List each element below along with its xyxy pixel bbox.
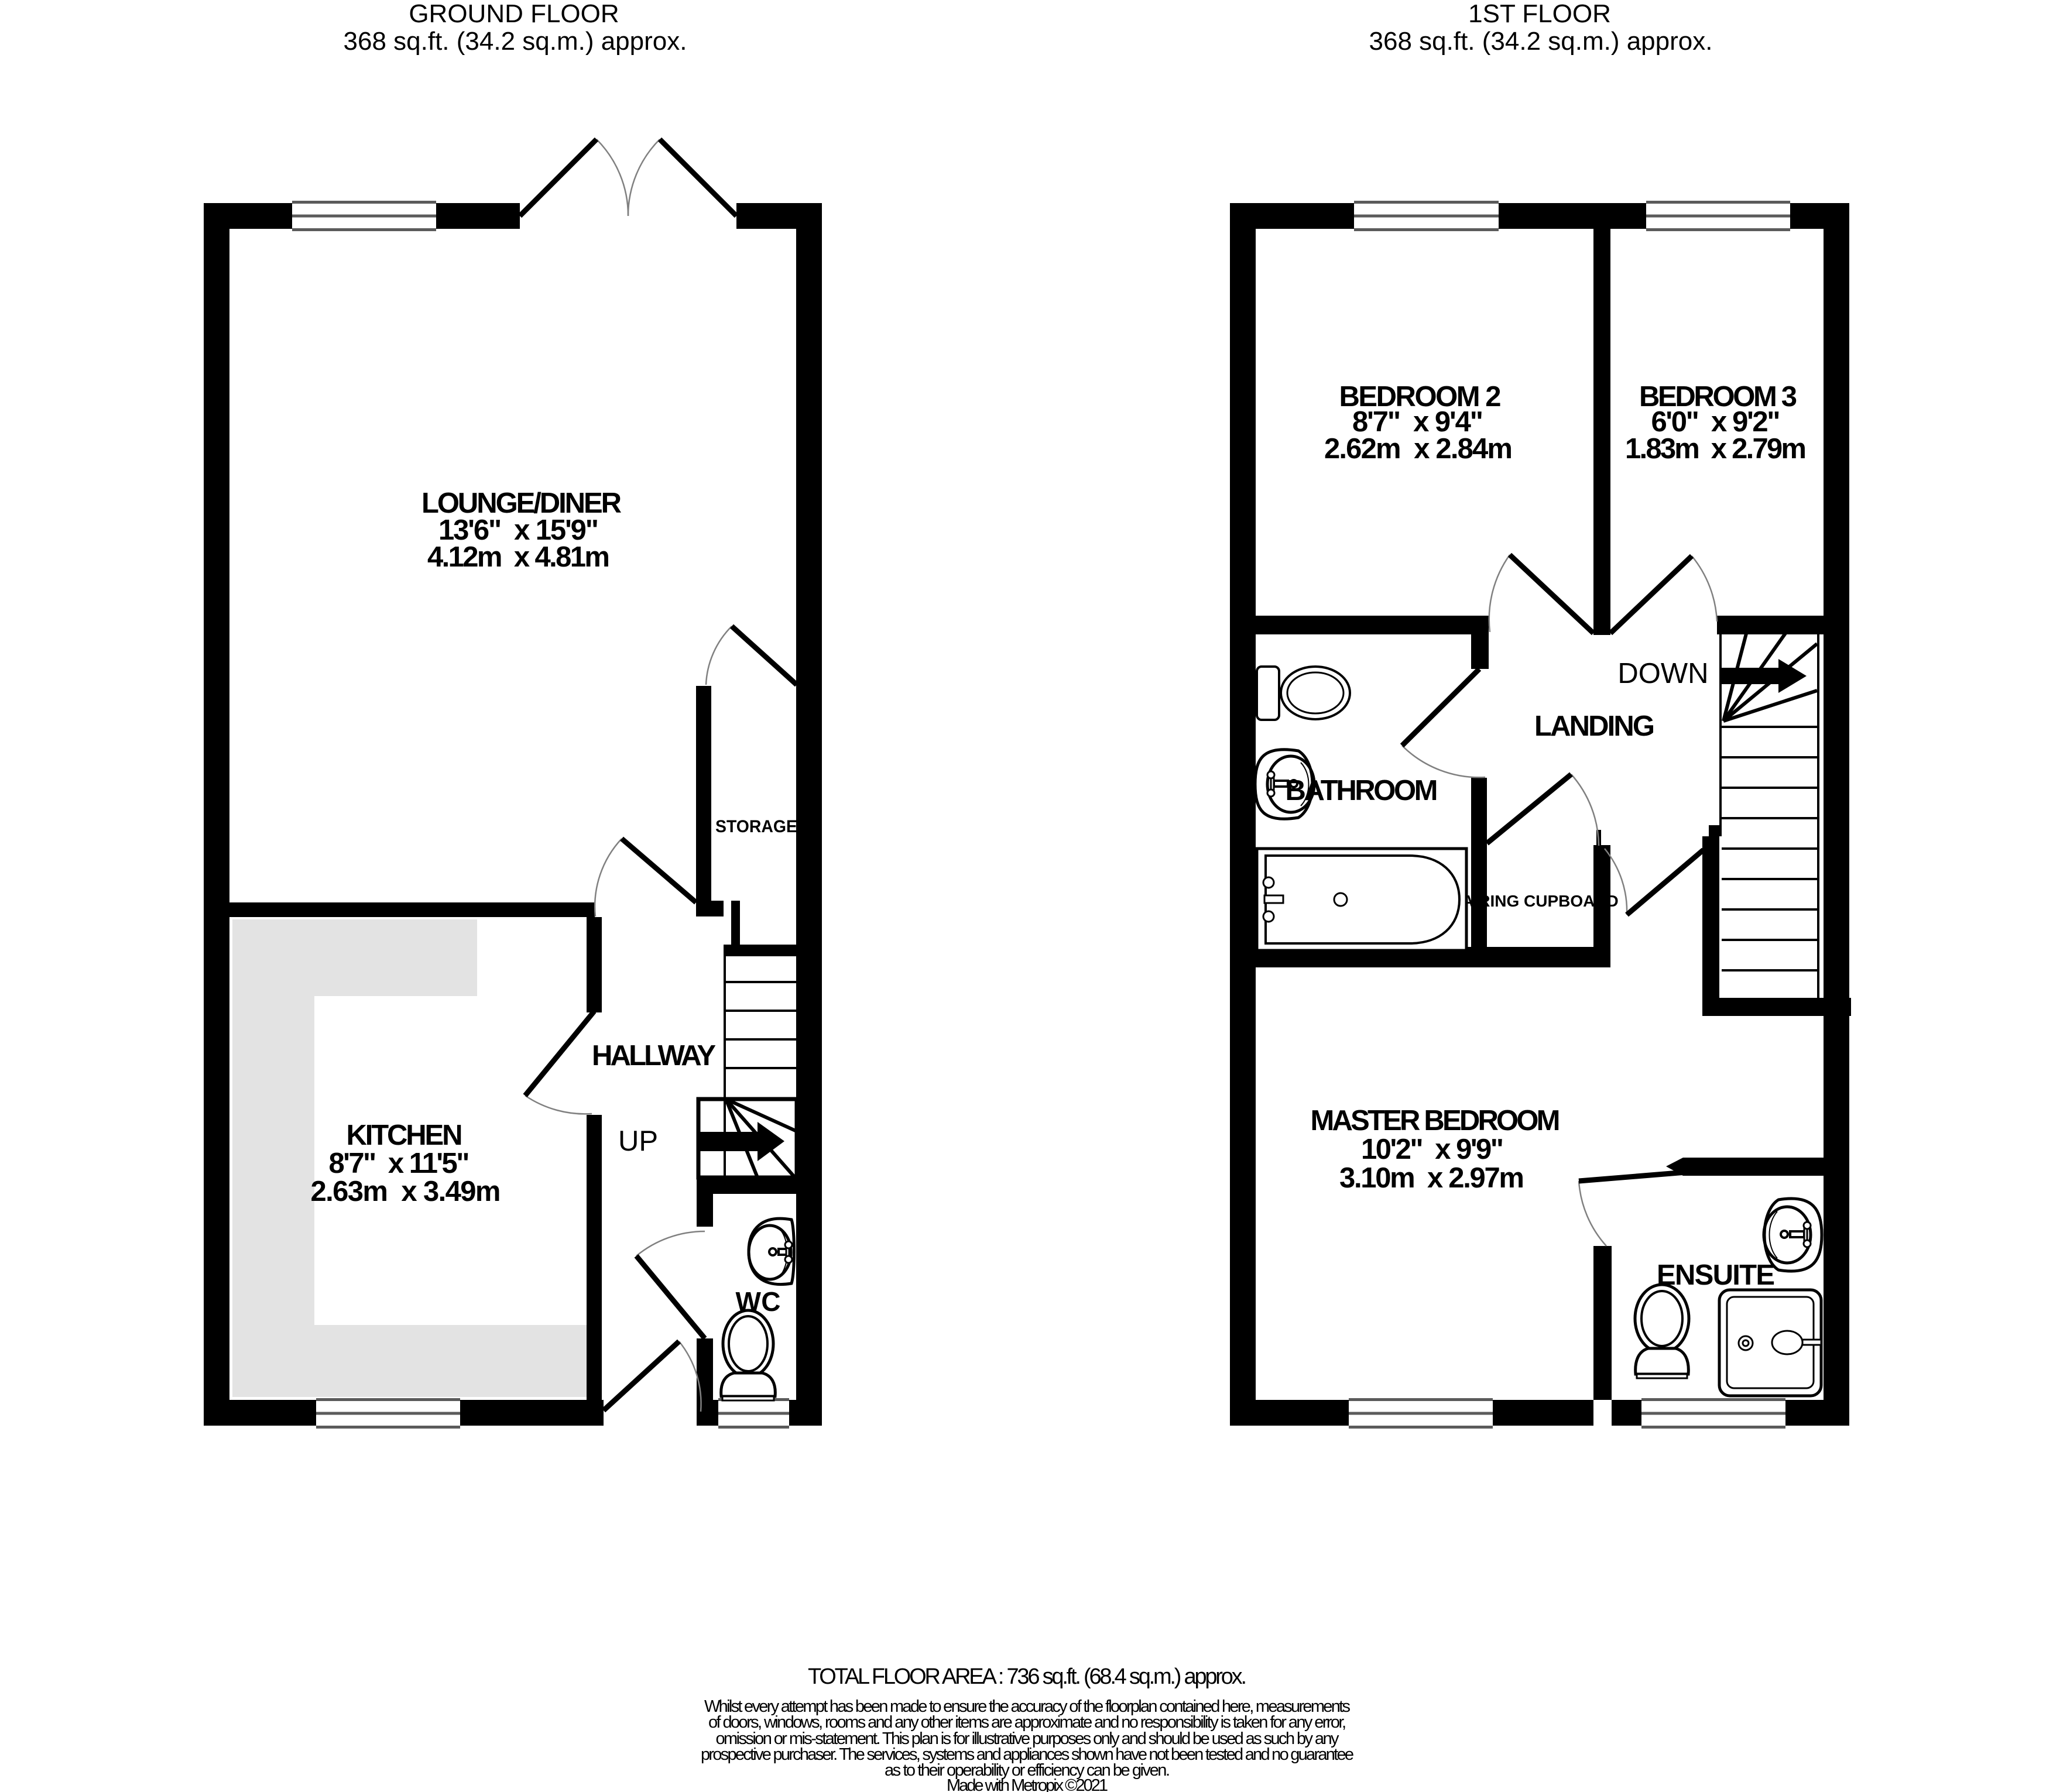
svg-text:3.10m x 2.97m: 3.10m x 2.97m [1339,1162,1524,1194]
svg-text:BATHROOM: BATHROOM [1286,775,1438,806]
svg-text:DOWN: DOWN [1617,658,1708,689]
svg-text:GROUND FLOOR: GROUND FLOOR [409,0,619,28]
svg-text:2.63m x 3.49m: 2.63m x 3.49m [311,1176,501,1207]
svg-text:MASTER BEDROOM: MASTER BEDROOM [1311,1105,1561,1137]
svg-text:Made with Metropix ©2021: Made with Metropix ©2021 [947,1776,1108,1792]
svg-text:2.62m x 2.84m: 2.62m x 2.84m [1324,433,1513,465]
svg-text:TOTAL FLOOR AREA : 736 sq.ft.: TOTAL FLOOR AREA : 736 sq.ft. (68.4 sq.m… [808,1664,1247,1689]
svg-text:368 sq.ft. (34.2 sq.m.) approx: 368 sq.ft. (34.2 sq.m.) approx. [344,27,687,56]
svg-text:STORAGE: STORAGE [715,817,797,836]
svg-text:10'2" x 9'9": 10'2" x 9'9" [1361,1134,1504,1165]
svg-text:4.12m x 4.81m: 4.12m x 4.81m [427,541,610,573]
svg-text:KITCHEN: KITCHEN [347,1120,463,1151]
svg-text:WC: WC [736,1286,781,1317]
svg-text:1ST FLOOR: 1ST FLOOR [1468,0,1611,28]
svg-text:HALLWAY: HALLWAY [592,1040,716,1072]
svg-text:368 sq.ft. (34.2 sq.m.) approx: 368 sq.ft. (34.2 sq.m.) approx. [1369,27,1713,56]
svg-text:UP: UP [618,1125,658,1157]
svg-text:1.83m x 2.79m: 1.83m x 2.79m [1625,433,1807,465]
svg-text:ENSUITE: ENSUITE [1657,1259,1775,1291]
svg-text:LANDING: LANDING [1534,710,1655,742]
svg-text:8'7" x 11'5": 8'7" x 11'5" [329,1148,470,1179]
